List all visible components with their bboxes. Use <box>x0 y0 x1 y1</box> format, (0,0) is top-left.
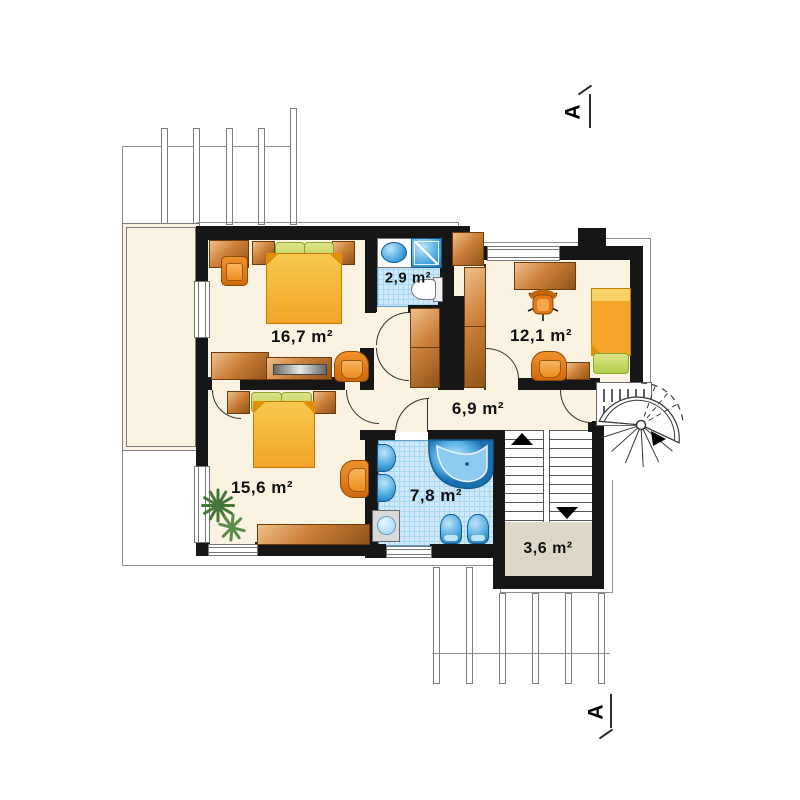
window <box>487 246 560 261</box>
wall <box>365 226 377 312</box>
wall <box>196 226 208 281</box>
dresser <box>257 524 370 545</box>
nightstand <box>227 391 250 414</box>
wardrobe <box>452 232 484 266</box>
room-label-bathroom-small: 2,9 m² <box>385 270 431 287</box>
pergola-post <box>466 567 473 684</box>
pergola-post <box>290 108 297 225</box>
office-chair <box>525 285 561 323</box>
pergola-post <box>598 593 605 684</box>
shower <box>411 238 442 268</box>
wall <box>378 544 386 558</box>
pergola-top-beam <box>122 146 295 147</box>
double-bed <box>253 401 315 468</box>
eave-bottom-line <box>122 565 500 566</box>
pergola-rail-line <box>432 653 610 654</box>
room-label-bedroom-1: 16,7 m² <box>271 327 333 347</box>
double-bed <box>266 253 342 324</box>
room-label-stair-landing: 3,6 m² <box>523 540 572 558</box>
corner-bathtub <box>423 434 499 492</box>
wardrobe <box>410 308 440 388</box>
single-bed <box>591 288 631 356</box>
pergola-post <box>499 593 506 684</box>
stair-divider <box>543 430 550 522</box>
wall <box>438 296 464 390</box>
pergola-post <box>532 593 539 684</box>
washing-machine <box>372 510 400 542</box>
pergola-post <box>258 128 265 225</box>
toilet <box>440 514 462 544</box>
pergola-post <box>433 567 440 684</box>
room-label-bathroom-large: 7,8 m² <box>410 486 462 506</box>
eave-bottom-line <box>500 592 612 593</box>
section-letter: A <box>585 704 609 719</box>
bidet <box>467 514 489 544</box>
wall <box>196 390 208 466</box>
window <box>194 281 210 338</box>
washbasin-counter <box>377 238 412 268</box>
wall <box>365 305 376 313</box>
eave-top-right-line <box>606 238 650 239</box>
wall <box>493 576 604 589</box>
floor-plan: 16,7 m² 2,9 m² 12,1 m² 6,9 m² 15,6 m² 7,… <box>0 0 800 800</box>
washbasin <box>381 242 407 263</box>
tv-cabinet <box>266 357 332 380</box>
stairs-down-arrow <box>556 507 578 519</box>
pergola-post <box>161 128 168 225</box>
eave-top-line <box>196 222 458 223</box>
room-label-bedroom-2: 12,1 m² <box>510 326 572 346</box>
sideboard <box>211 352 269 380</box>
pillow <box>593 353 629 374</box>
eave-right-line <box>650 238 651 383</box>
nightstand <box>313 391 336 414</box>
tv-screen <box>273 364 327 375</box>
stairs-up-arrow <box>511 433 533 445</box>
pergola-post <box>565 593 572 684</box>
wall <box>430 544 493 558</box>
pergola-post <box>226 128 233 225</box>
spiral-staircase <box>591 375 691 475</box>
wall <box>630 250 643 390</box>
armchair <box>334 351 369 382</box>
armchair <box>531 351 567 381</box>
wardrobe <box>464 267 486 388</box>
eave-right-line <box>612 480 613 593</box>
section-letter: A <box>562 104 586 119</box>
balcony <box>122 223 200 451</box>
armchair <box>340 460 369 498</box>
pergola-post <box>193 128 200 225</box>
wall <box>196 377 212 390</box>
nightstand <box>566 362 590 380</box>
plant <box>206 496 254 548</box>
window <box>386 546 432 558</box>
door-leaf <box>427 398 428 432</box>
room-label-bedroom-3: 15,6 m² <box>231 478 293 498</box>
room-label-hall: 6,9 m² <box>452 399 504 419</box>
chair <box>221 256 248 286</box>
